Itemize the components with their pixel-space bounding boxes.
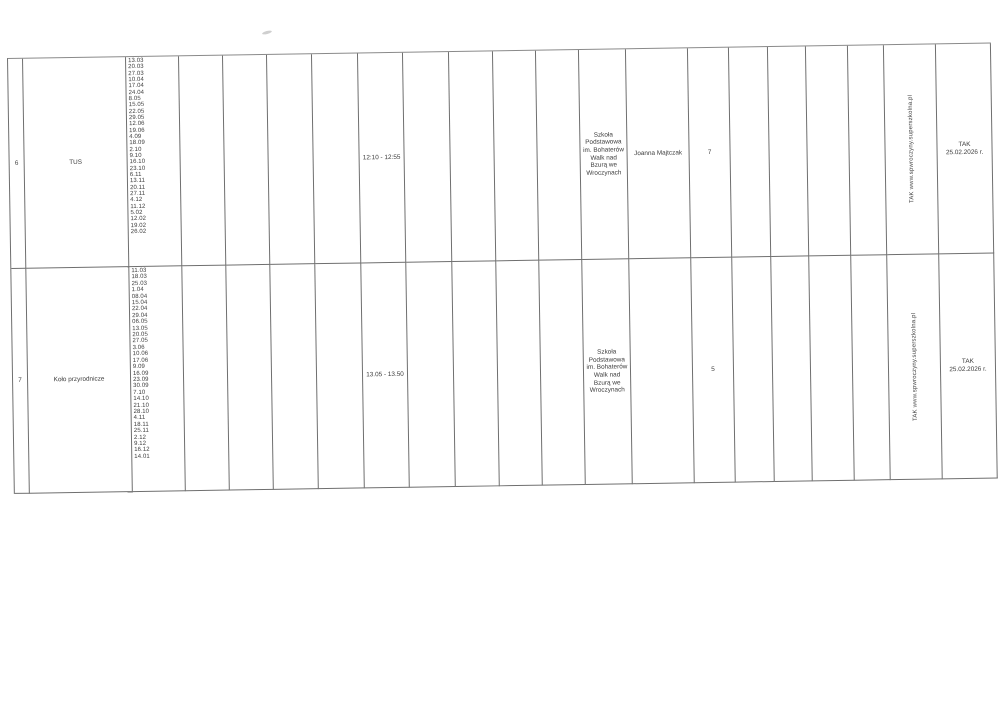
empty-cell <box>771 256 813 482</box>
empty-cell <box>267 54 315 265</box>
empty-cell <box>312 53 361 264</box>
teacher-cell: Joanna Majtczak <box>626 48 691 259</box>
empty-cell <box>315 263 365 489</box>
school-cell: Szkoła Podstawowa im. Bohaterów Walk nad… <box>582 259 633 485</box>
scan-artifact <box>262 30 272 35</box>
empty-cell <box>270 264 319 490</box>
empty-cell <box>403 52 452 263</box>
empty-cell <box>226 265 274 491</box>
participants-count-cell: 7 <box>688 48 732 259</box>
time-cell: 13.05 - 13.50 <box>361 263 410 489</box>
website-confirmation-text: TAK www.spwroczyny.superszkolna.pl <box>911 313 919 421</box>
teacher-cell <box>629 258 695 484</box>
empty-cell <box>848 45 887 256</box>
empty-cell <box>406 262 456 488</box>
empty-cell <box>732 257 775 483</box>
activity-name-cell: TUS <box>23 57 129 269</box>
empty-cell <box>223 55 270 266</box>
empty-cell <box>806 46 851 257</box>
website-confirmation-cell: TAK www.spwroczyny.superszkolna.pl <box>884 44 939 255</box>
empty-cell <box>729 47 771 258</box>
empty-cell <box>493 51 539 262</box>
date-confirmation-cell: TAK 25.02.2026 r. <box>939 254 998 480</box>
empty-cell <box>179 56 226 267</box>
schedule-table: 6 TUS 13.03 20.03 27.03 10.04 17.04 24.0… <box>7 43 998 494</box>
dates-cell: 11.03 18.03 25.03 1.04 08.04 15.04 22.04… <box>129 266 186 492</box>
empty-cell <box>809 256 855 482</box>
empty-cell <box>449 51 496 262</box>
empty-cell <box>851 255 891 481</box>
empty-cell <box>539 260 586 486</box>
school-cell: Szkoła Podstawowa im. Bohaterów Walk nad… <box>579 49 629 260</box>
participants-count-cell: 5 <box>691 258 736 484</box>
dates-cell: 13.03 20.03 27.03 10.04 17.04 24.04 8.05… <box>126 56 182 267</box>
empty-cell <box>182 266 230 492</box>
empty-cell <box>496 261 543 487</box>
website-confirmation-cell: TAK www.spwroczyny.superszkolna.pl <box>887 254 943 480</box>
website-confirmation-text: TAK www.spwroczyny.superszkolna.pl <box>907 95 915 203</box>
date-confirmation-cell: TAK 25.02.2026 r. <box>936 44 994 255</box>
empty-cell <box>768 46 809 257</box>
scanned-page: 6 TUS 13.03 20.03 27.03 10.04 17.04 24.0… <box>0 0 1000 703</box>
time-cell: 12:10 - 12:55 <box>358 53 406 264</box>
table-row: 7 Koło przyrodnicze 11.03 18.03 25.03 1.… <box>11 254 997 494</box>
table-row: 6 TUS 13.03 20.03 27.03 10.04 17.04 24.0… <box>8 44 994 269</box>
activity-name-cell: Koło przyrodnicze <box>26 267 133 494</box>
empty-cell <box>536 50 582 261</box>
empty-cell <box>452 261 500 487</box>
